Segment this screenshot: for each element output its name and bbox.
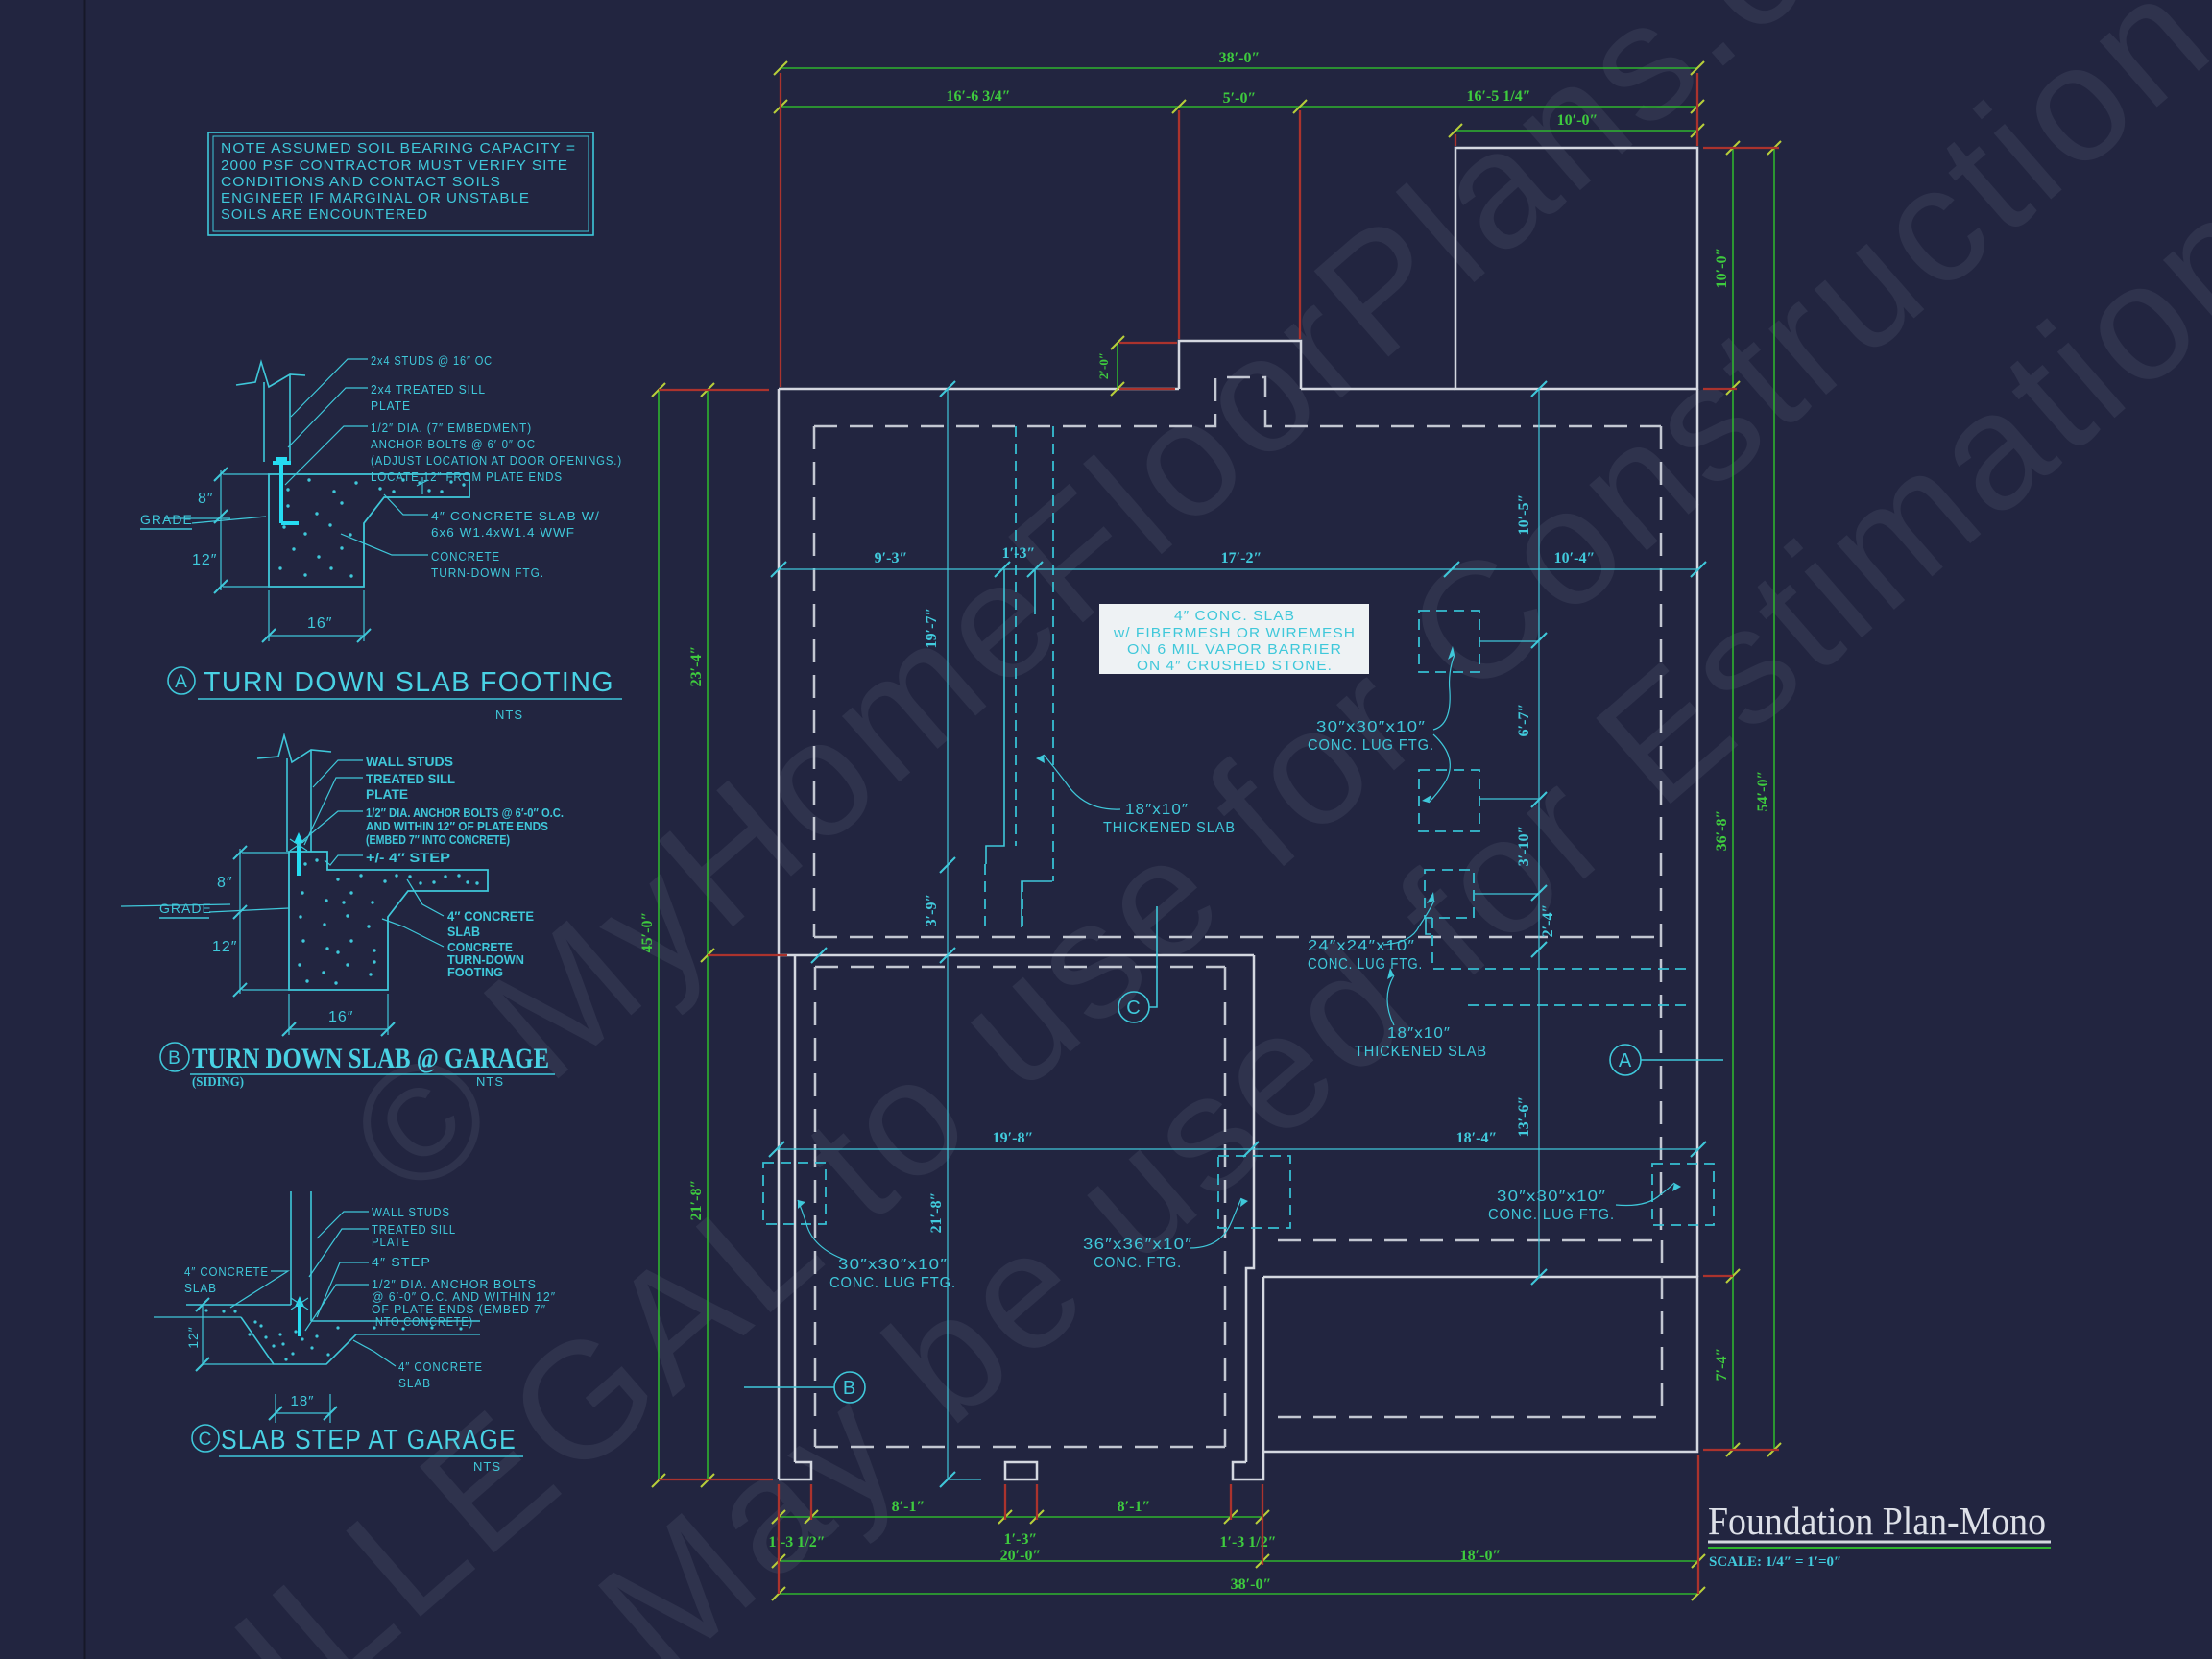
svg-text:3′-9″: 3′-9″ bbox=[924, 894, 940, 927]
svg-text:18′-0″: 18′-0″ bbox=[1460, 1548, 1502, 1564]
svg-text:PLATE: PLATE bbox=[371, 398, 411, 413]
svg-text:(EMBED 7″ INTO CONCRETE): (EMBED 7″ INTO CONCRETE) bbox=[366, 832, 510, 847]
svg-text:21′-8″: 21′-8″ bbox=[688, 1180, 705, 1221]
svg-text:A: A bbox=[1619, 1050, 1632, 1071]
svg-text:5′-0″: 5′-0″ bbox=[1223, 90, 1257, 107]
svg-text:8″: 8″ bbox=[217, 875, 233, 891]
svg-text:CONC. LUG FTG.: CONC. LUG FTG. bbox=[1308, 737, 1434, 754]
svg-text:10′-0″: 10′-0″ bbox=[1714, 248, 1730, 289]
svg-text:21′-8″: 21′-8″ bbox=[928, 1192, 945, 1234]
svg-text:1/2″ DIA. (7″ EMBEDMENT): 1/2″ DIA. (7″ EMBEDMENT) bbox=[371, 421, 532, 435]
svg-text:12″: 12″ bbox=[192, 552, 217, 568]
svg-text:38′-0″: 38′-0″ bbox=[1231, 1576, 1272, 1593]
svg-text:20′-0″: 20′-0″ bbox=[1000, 1548, 1042, 1564]
svg-text:ENGINEER IF MARGINAL OR UNSTAB: ENGINEER IF MARGINAL OR UNSTABLE bbox=[221, 190, 530, 206]
svg-text:(SIDING): (SIDING) bbox=[192, 1075, 244, 1090]
svg-text:13′-6″: 13′-6″ bbox=[1516, 1096, 1532, 1138]
svg-text:NTS: NTS bbox=[476, 1074, 504, 1089]
svg-text:8′-1″: 8′-1″ bbox=[892, 1499, 926, 1515]
svg-text:2x4 TREATED SILL: 2x4 TREATED SILL bbox=[371, 382, 486, 397]
svg-text:PLATE: PLATE bbox=[372, 1235, 410, 1249]
svg-text:38′-0″: 38′-0″ bbox=[1219, 50, 1261, 66]
svg-text:30″x30″x10″: 30″x30″x10″ bbox=[838, 1257, 948, 1273]
svg-text:2000 PSF CONTRACTOR MUST VERIF: 2000 PSF CONTRACTOR MUST VERIFY SITE bbox=[221, 157, 568, 174]
svg-text:A: A bbox=[175, 672, 188, 692]
svg-text:NTS: NTS bbox=[495, 708, 523, 722]
svg-text:C: C bbox=[1126, 998, 1141, 1019]
svg-text:4″ STEP: 4″ STEP bbox=[372, 1255, 431, 1269]
svg-text:(ADJUST LOCATION AT DOOR OPENI: (ADJUST LOCATION AT DOOR OPENINGS.) bbox=[371, 453, 622, 468]
svg-text:NTS: NTS bbox=[473, 1459, 501, 1474]
svg-text:4″ CONCRETE: 4″ CONCRETE bbox=[447, 908, 534, 924]
svg-text:18″x10″: 18″x10″ bbox=[1125, 802, 1189, 818]
svg-text:THICKENED SLAB: THICKENED SLAB bbox=[1355, 1044, 1487, 1060]
svg-text:CONCRETE: CONCRETE bbox=[431, 549, 500, 564]
svg-text:SOILS ARE ENCOUNTERED: SOILS ARE ENCOUNTERED bbox=[221, 206, 428, 223]
svg-text:CONDITIONS AND CONTACT SOILS: CONDITIONS AND CONTACT SOILS bbox=[221, 174, 501, 190]
svg-text:16′-6 3/4″: 16′-6 3/4″ bbox=[946, 88, 1010, 105]
svg-text:1′-3 1/2″: 1′-3 1/2″ bbox=[768, 1534, 825, 1551]
svg-text:w/ FIBERMESH OR WIREMESH: w/ FIBERMESH OR WIREMESH bbox=[1113, 625, 1356, 641]
svg-text:17′-2″: 17′-2″ bbox=[1221, 550, 1262, 566]
svg-text:CONC. LUG FTG.: CONC. LUG FTG. bbox=[829, 1275, 956, 1291]
svg-text:THICKENED SLAB: THICKENED SLAB bbox=[1103, 820, 1236, 836]
svg-text:6x6 W1.4xW1.4 WWF: 6x6 W1.4xW1.4 WWF bbox=[431, 525, 575, 540]
svg-text:ON 4″ CRUSHED STONE.: ON 4″ CRUSHED STONE. bbox=[1137, 658, 1333, 674]
svg-text:8″: 8″ bbox=[198, 491, 214, 507]
svg-text:4″ CONCRETE SLAB W/: 4″ CONCRETE SLAB W/ bbox=[431, 509, 600, 523]
svg-text:B: B bbox=[168, 1048, 181, 1069]
svg-text:8′-1″: 8′-1″ bbox=[1118, 1499, 1151, 1515]
svg-text:16″: 16″ bbox=[328, 1009, 353, 1025]
svg-text:TURN DOWN SLAB @ GARAGE: TURN DOWN SLAB @ GARAGE bbox=[192, 1043, 549, 1074]
svg-text:SCALE: 1/4″ = 1′=0″: SCALE: 1/4″ = 1′=0″ bbox=[1709, 1554, 1841, 1570]
svg-text:16′-5 1/4″: 16′-5 1/4″ bbox=[1466, 88, 1530, 105]
svg-text:10′-5″: 10′-5″ bbox=[1516, 494, 1532, 536]
svg-text:INTO CONCRETE): INTO CONCRETE) bbox=[372, 1314, 473, 1329]
svg-text:12″: 12″ bbox=[185, 1326, 201, 1349]
svg-text:+/- 4″ STEP: +/- 4″ STEP bbox=[366, 850, 450, 865]
svg-text:23′-4″: 23′-4″ bbox=[688, 646, 705, 687]
svg-text:18″x10″: 18″x10″ bbox=[1387, 1025, 1451, 1042]
svg-text:GRADE: GRADE bbox=[140, 512, 193, 527]
svg-text:2′-4″: 2′-4″ bbox=[1540, 904, 1556, 938]
svg-text:2x4 STUDS @ 16″ OC: 2x4 STUDS @ 16″ OC bbox=[371, 353, 493, 368]
svg-text:1′-3 1/2″: 1′-3 1/2″ bbox=[1219, 1534, 1276, 1551]
svg-text:WALL STUDS: WALL STUDS bbox=[372, 1205, 450, 1219]
svg-text:GRADE: GRADE bbox=[159, 901, 212, 916]
svg-text:TURN DOWN SLAB FOOTING: TURN DOWN SLAB FOOTING bbox=[204, 667, 614, 698]
svg-text:36″x36″x10″: 36″x36″x10″ bbox=[1083, 1237, 1192, 1253]
svg-text:10′-0″: 10′-0″ bbox=[1557, 112, 1599, 129]
svg-text:SLAB: SLAB bbox=[398, 1376, 431, 1390]
svg-text:FOOTING: FOOTING bbox=[447, 965, 503, 979]
svg-text:ANCHOR BOLTS @ 6′-0″ OC: ANCHOR BOLTS @ 6′-0″ OC bbox=[371, 437, 536, 451]
svg-text:PLATE: PLATE bbox=[366, 786, 408, 802]
svg-text:24″x24″x10″: 24″x24″x10″ bbox=[1308, 938, 1415, 954]
svg-text:36′-8″: 36′-8″ bbox=[1714, 810, 1730, 852]
svg-text:C: C bbox=[199, 1430, 213, 1450]
svg-text:SLAB: SLAB bbox=[447, 924, 480, 939]
svg-text:ON 6 MIL VAPOR BARRIER: ON 6 MIL VAPOR BARRIER bbox=[1127, 641, 1342, 658]
svg-text:16″: 16″ bbox=[307, 615, 332, 632]
svg-text:WALL STUDS: WALL STUDS bbox=[366, 754, 453, 769]
svg-text:7′-4″: 7′-4″ bbox=[1714, 1348, 1730, 1382]
svg-text:45′-0″: 45′-0″ bbox=[639, 912, 656, 953]
svg-text:3′-10″: 3′-10″ bbox=[1516, 826, 1532, 867]
svg-text:LOCATE 12″ FROM PLATE ENDS: LOCATE 12″ FROM PLATE ENDS bbox=[371, 469, 563, 484]
svg-text:SLAB STEP AT GARAGE: SLAB STEP AT GARAGE bbox=[221, 1425, 517, 1455]
svg-text:B: B bbox=[843, 1378, 856, 1399]
svg-text:TREATED SILL: TREATED SILL bbox=[366, 771, 455, 786]
svg-text:30″x30″x10″: 30″x30″x10″ bbox=[1497, 1189, 1606, 1205]
svg-text:4″ CONCRETE: 4″ CONCRETE bbox=[398, 1359, 483, 1374]
svg-text:19′-8″: 19′-8″ bbox=[993, 1130, 1034, 1146]
svg-text:18′-4″: 18′-4″ bbox=[1456, 1130, 1498, 1146]
svg-text:TURN-DOWN FTG.: TURN-DOWN FTG. bbox=[431, 565, 544, 580]
svg-text:AND WITHIN 12″ OF PLATE ENDS: AND WITHIN 12″ OF PLATE ENDS bbox=[366, 819, 548, 833]
svg-text:1′-3″: 1′-3″ bbox=[1002, 545, 1036, 562]
svg-text:4″ CONC. SLAB: 4″ CONC. SLAB bbox=[1174, 608, 1295, 624]
svg-text:2′-0″: 2′-0″ bbox=[1096, 352, 1111, 379]
svg-text:54′-0″: 54′-0″ bbox=[1755, 771, 1771, 812]
svg-text:30″x30″x10″: 30″x30″x10″ bbox=[1316, 719, 1426, 735]
svg-text:CONC. LUG FTG.: CONC. LUG FTG. bbox=[1308, 956, 1423, 973]
svg-text:12″: 12″ bbox=[212, 939, 237, 955]
svg-text:1′-3″: 1′-3″ bbox=[1004, 1531, 1038, 1548]
svg-text:CONC. LUG FTG.: CONC. LUG FTG. bbox=[1488, 1207, 1615, 1223]
svg-text:9′-3″: 9′-3″ bbox=[875, 550, 908, 566]
svg-text:SLAB: SLAB bbox=[184, 1281, 217, 1295]
svg-text:NOTE ASSUMED SOIL BEARING CAPA: NOTE ASSUMED SOIL BEARING CAPACITY = bbox=[221, 140, 576, 156]
svg-text:1/2″ DIA. ANCHOR BOLTS @ 6′-0″: 1/2″ DIA. ANCHOR BOLTS @ 6′-0″ O.C. bbox=[366, 805, 564, 820]
svg-text:19′-7″: 19′-7″ bbox=[924, 608, 940, 649]
svg-text:6′-7″: 6′-7″ bbox=[1516, 704, 1532, 737]
svg-text:4″ CONCRETE: 4″ CONCRETE bbox=[184, 1264, 269, 1279]
svg-text:10′-4″: 10′-4″ bbox=[1554, 550, 1596, 566]
svg-text:CONC. FTG.: CONC. FTG. bbox=[1094, 1255, 1182, 1271]
svg-text:18″: 18″ bbox=[291, 1393, 315, 1409]
svg-text:Foundation Plan-Mono: Foundation Plan-Mono bbox=[1708, 1499, 2046, 1543]
